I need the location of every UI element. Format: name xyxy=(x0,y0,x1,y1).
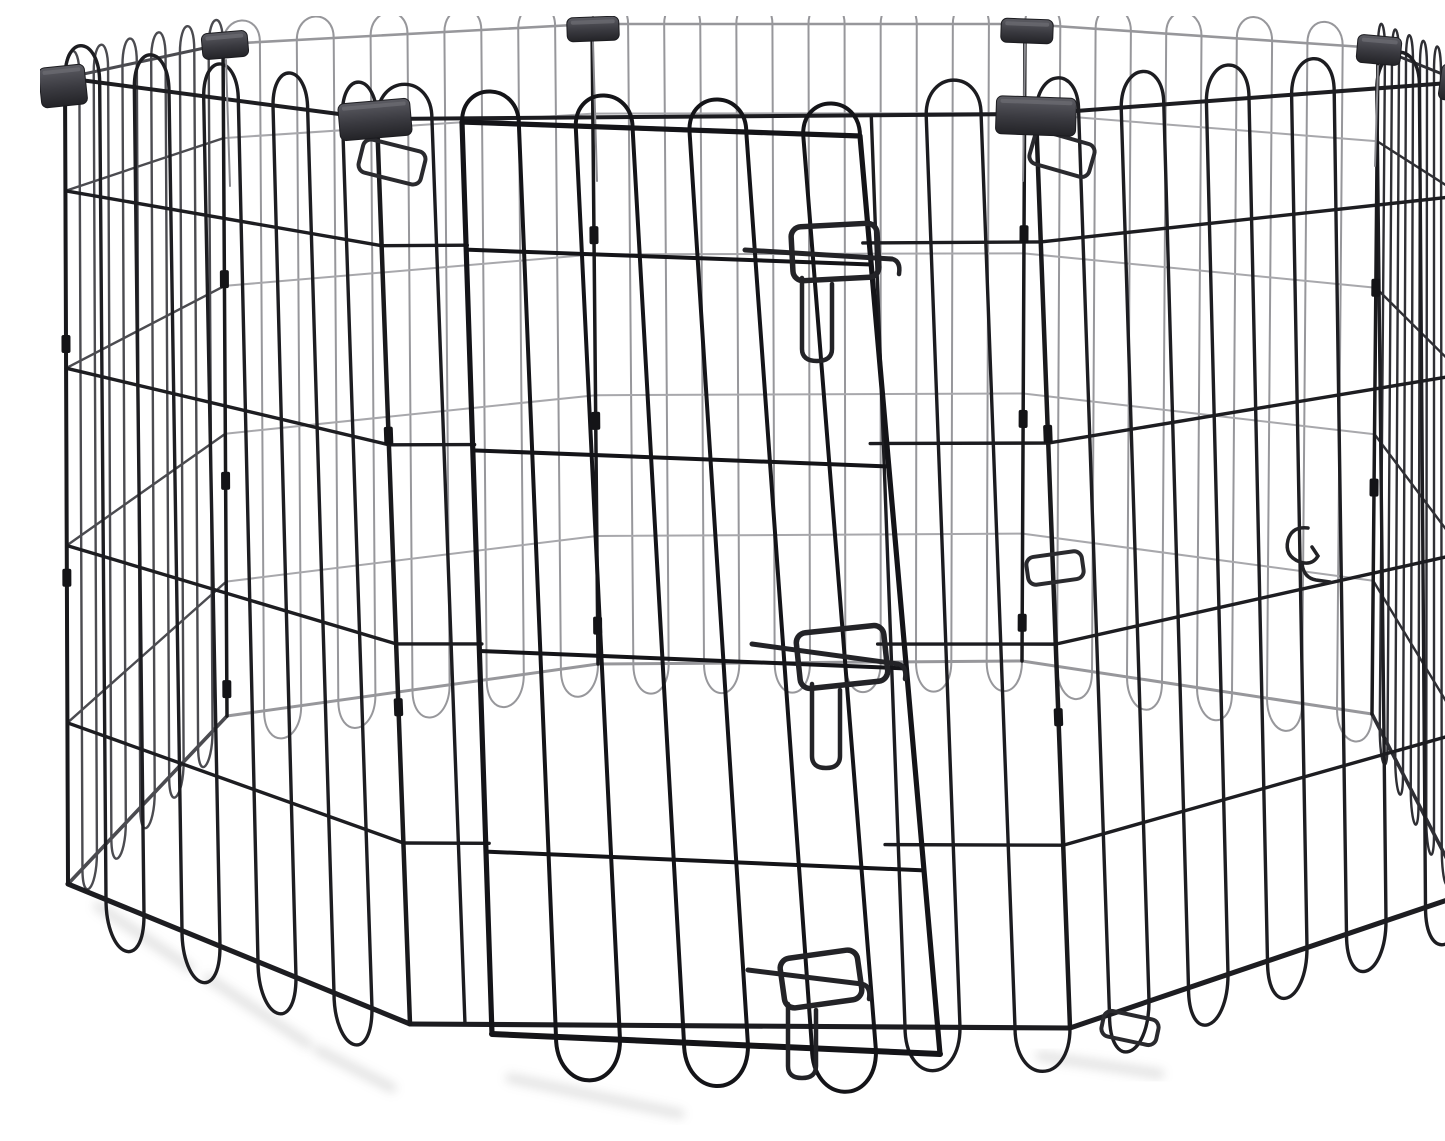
pen-svg xyxy=(40,16,1445,1125)
corner-clip-front-left xyxy=(338,98,413,141)
corner-clip-back-left xyxy=(201,30,249,60)
corner-clip-back-midleft xyxy=(567,16,620,42)
corner-clip-back-right xyxy=(1356,34,1402,66)
product-photo xyxy=(40,16,1445,1125)
corner-clip-back-midright xyxy=(1001,18,1054,44)
corner-clip-front-right xyxy=(995,96,1076,137)
corner-clip-left xyxy=(40,64,88,109)
